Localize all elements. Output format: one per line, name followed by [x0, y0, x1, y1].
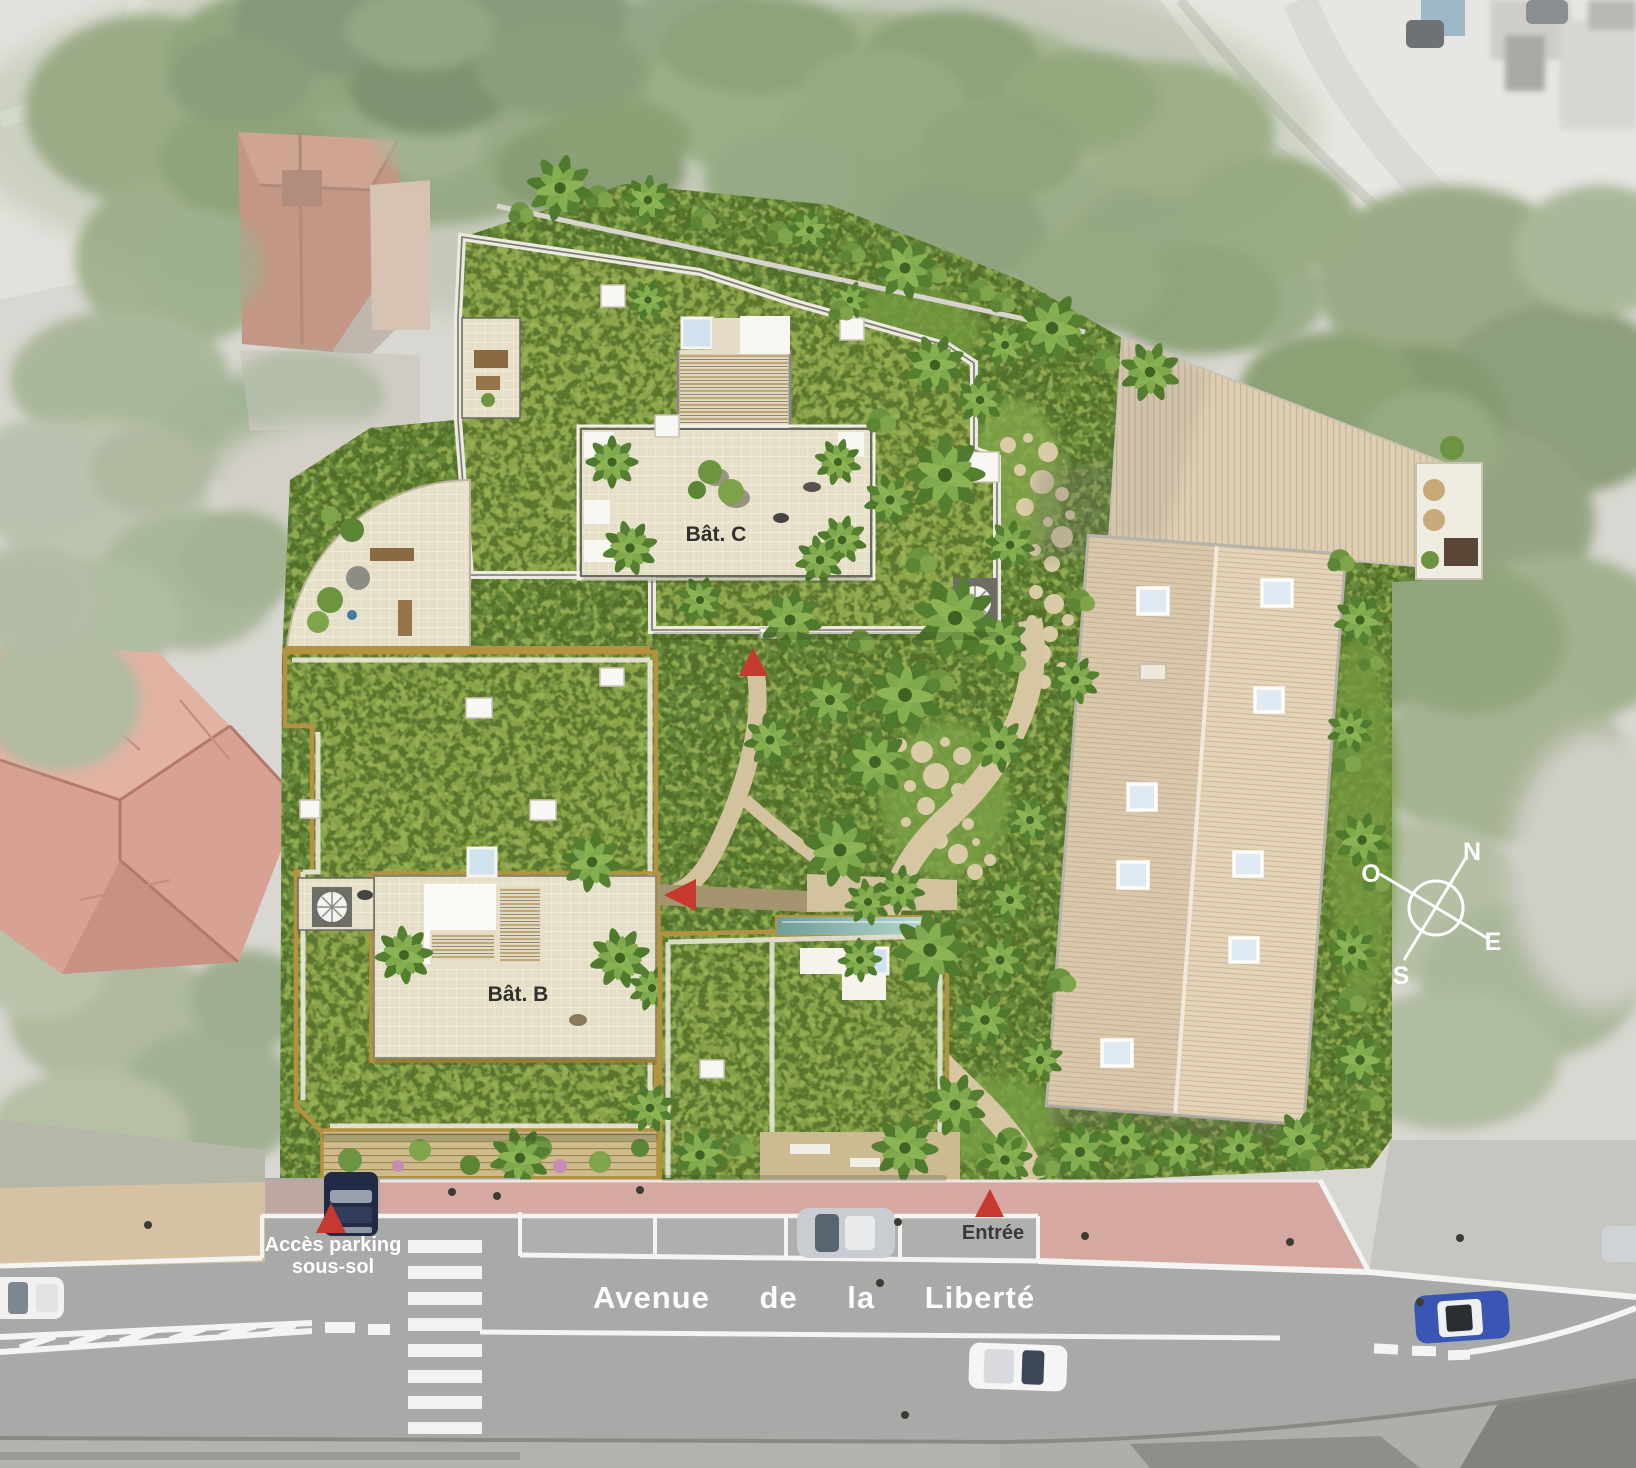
- svg-text:N: N: [1463, 838, 1481, 866]
- svg-text:Bât. B: Bât. B: [488, 983, 549, 1006]
- svg-text:Avenue de la Liberté: Avenue de la Liberté: [593, 1280, 1035, 1315]
- svg-text:sous-sol: sous-sol: [292, 1256, 374, 1278]
- svg-text:Bât. C: Bât. C: [686, 523, 747, 546]
- svg-text:Accès parking: Accès parking: [265, 1234, 402, 1256]
- svg-text:S: S: [1393, 962, 1410, 990]
- svg-text:O: O: [1361, 860, 1380, 888]
- svg-text:Entrée: Entrée: [962, 1222, 1024, 1244]
- svg-text:E: E: [1485, 928, 1502, 956]
